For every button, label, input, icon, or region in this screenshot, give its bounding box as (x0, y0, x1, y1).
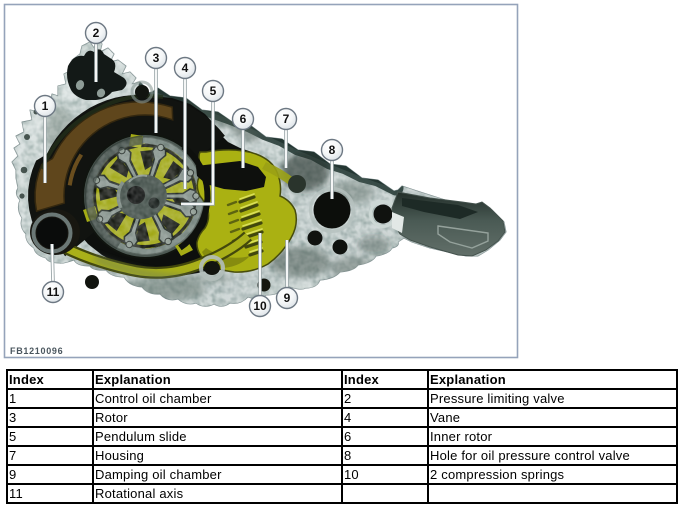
svg-text:5: 5 (210, 84, 217, 98)
svg-text:8: 8 (329, 143, 336, 157)
svg-text:7: 7 (283, 112, 290, 126)
svg-text:11: 11 (47, 285, 60, 299)
svg-text:4: 4 (182, 61, 189, 75)
svg-text:6: 6 (240, 112, 247, 126)
svg-text:FB1210096: FB1210096 (10, 346, 63, 356)
svg-text:2: 2 (93, 26, 100, 40)
svg-text:1: 1 (42, 99, 49, 113)
svg-text:10: 10 (253, 299, 267, 313)
svg-text:3: 3 (153, 51, 160, 65)
svg-text:9: 9 (284, 291, 291, 305)
